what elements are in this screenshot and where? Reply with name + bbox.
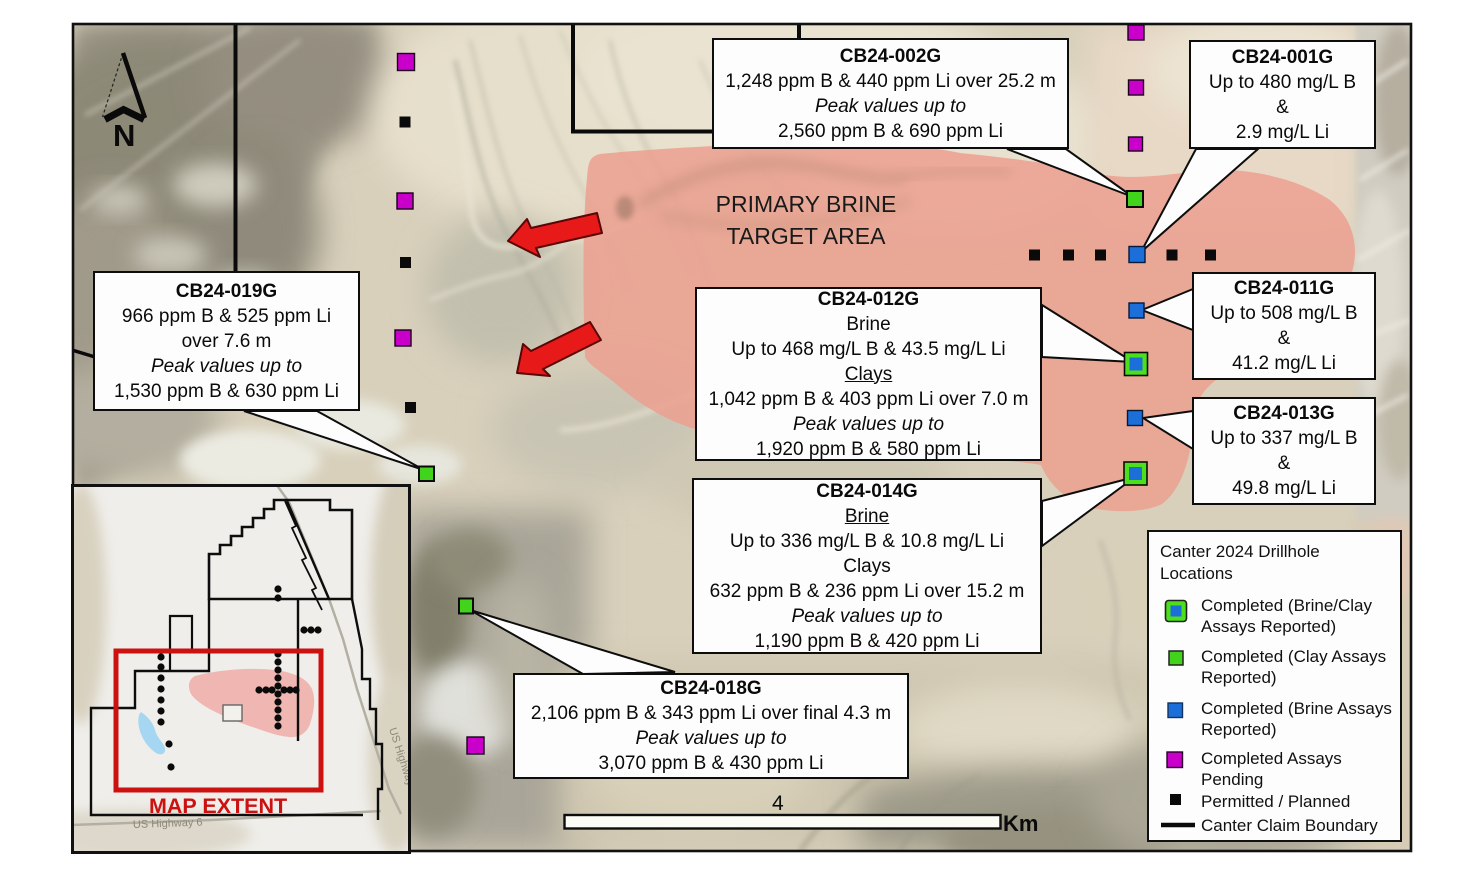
svg-text:US Highway 6: US Highway 6 (133, 817, 203, 831)
svg-text:Km: Km (1003, 811, 1038, 836)
svg-text:N: N (113, 118, 135, 153)
svg-text:MAP EXTENT: MAP EXTENT (149, 794, 287, 818)
svg-text:4: 4 (772, 792, 784, 815)
